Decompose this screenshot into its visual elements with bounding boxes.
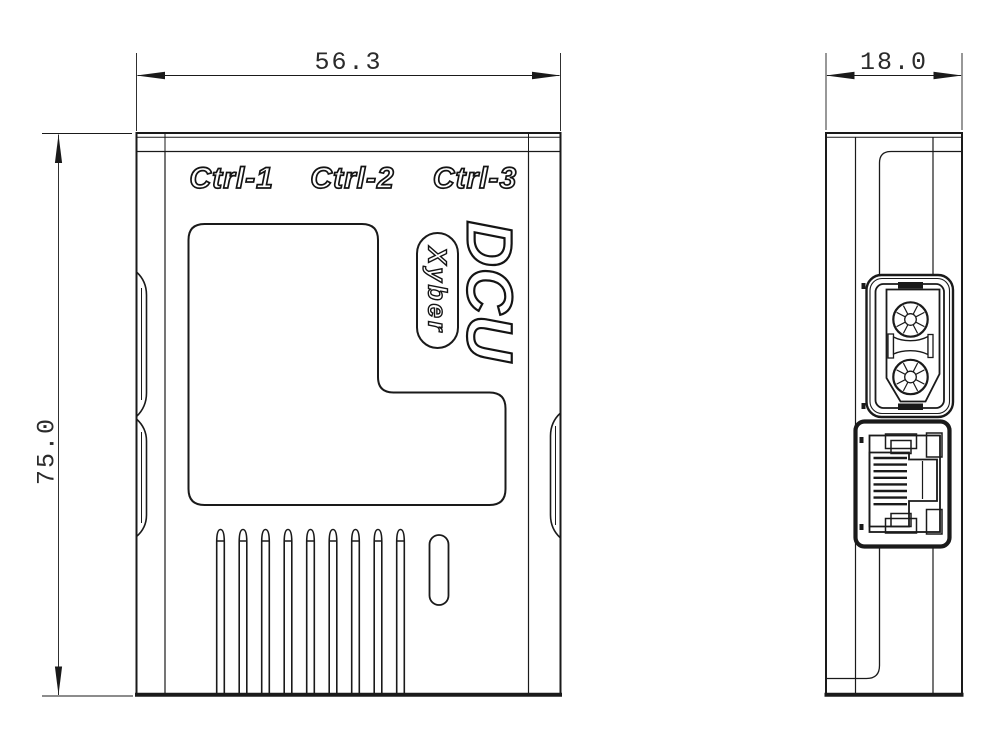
- dim-side-depth: 18.0: [826, 48, 962, 130]
- arrowhead: [137, 72, 166, 79]
- dim-front-width: 56.3: [137, 48, 561, 131]
- arrowhead: [55, 667, 62, 696]
- side-panel-line-bottom: [826, 547, 880, 679]
- left-latch-bumps: [137, 272, 147, 537]
- xt30-pin-core: [905, 371, 917, 383]
- vent-slot: [217, 530, 225, 695]
- xt30-pin-positive: [893, 302, 927, 336]
- dim-front-height: 75.0: [32, 134, 133, 697]
- vent-slots: [217, 530, 405, 695]
- vent-slot: [397, 530, 405, 695]
- arrowhead: [934, 72, 963, 79]
- xt30-mount-mark: [862, 403, 866, 409]
- arrowhead: [826, 72, 855, 79]
- xt30-key-tab-bottom: [898, 404, 923, 411]
- vent-slot: [262, 530, 270, 695]
- side-view: [825, 133, 964, 696]
- port-label-ctrl-1: Ctrl-1: [190, 162, 274, 195]
- rj45-contact-pins: [874, 458, 908, 504]
- front-enclosure-outline: [137, 133, 561, 696]
- brand-badge-text: Xyber: [422, 245, 452, 334]
- vent-slot: [352, 530, 360, 695]
- product-name-logo: DCU: [454, 221, 526, 363]
- dim-front-height-value: 75.0: [32, 417, 61, 485]
- xt30-divider-bar: [888, 334, 894, 358]
- rj45-shield-tab-inner: [891, 441, 911, 454]
- vent-slot: [374, 530, 382, 695]
- dim-front-width-value: 56.3: [314, 48, 382, 77]
- drawing-canvas: Ctrl-1 Ctrl-2 Ctrl-3 DCU Xyber: [0, 0, 1000, 737]
- xt30-key-tab-top: [898, 282, 923, 289]
- vent-slot: [284, 530, 292, 695]
- front-view: Ctrl-1 Ctrl-2 Ctrl-3 DCU Xyber: [135, 133, 562, 696]
- vent-slot: [307, 530, 315, 695]
- xt30-mount-mark: [862, 283, 866, 289]
- arrowhead: [55, 135, 62, 164]
- rj45-jack: [856, 422, 950, 547]
- xt30-divider-bar: [928, 335, 933, 358]
- oblong-slot: [430, 535, 449, 605]
- side-panel-line-top: [880, 152, 963, 276]
- xt30-pin-cross-slots: [897, 363, 925, 391]
- xt30-pin-cross-slots: [897, 306, 925, 334]
- xt30-power-connector: [862, 275, 954, 417]
- right-latch-bump: [551, 413, 561, 538]
- dim-side-depth-value: 18.0: [860, 48, 928, 77]
- vent-slot: [239, 530, 247, 695]
- side-enclosure-outline: [826, 133, 962, 696]
- xt30-divider-bowtie: [894, 337, 929, 355]
- port-label-ctrl-2: Ctrl-2: [310, 162, 394, 195]
- port-label-ctrl-3: Ctrl-3: [433, 162, 517, 195]
- xt30-pin-negative: [893, 360, 927, 394]
- arrowhead: [532, 72, 561, 79]
- rj45-mount-mark: [860, 524, 864, 530]
- rj45-shield-tab-inner: [891, 514, 911, 527]
- xt30-pin-core: [905, 314, 917, 326]
- rj45-mount-mark: [860, 437, 864, 443]
- technical-drawing-page: Ctrl-1 Ctrl-2 Ctrl-3 DCU Xyber: [0, 0, 1000, 737]
- vent-slot: [329, 530, 337, 695]
- dimensions: 56.3 75.0 18.0: [32, 48, 962, 696]
